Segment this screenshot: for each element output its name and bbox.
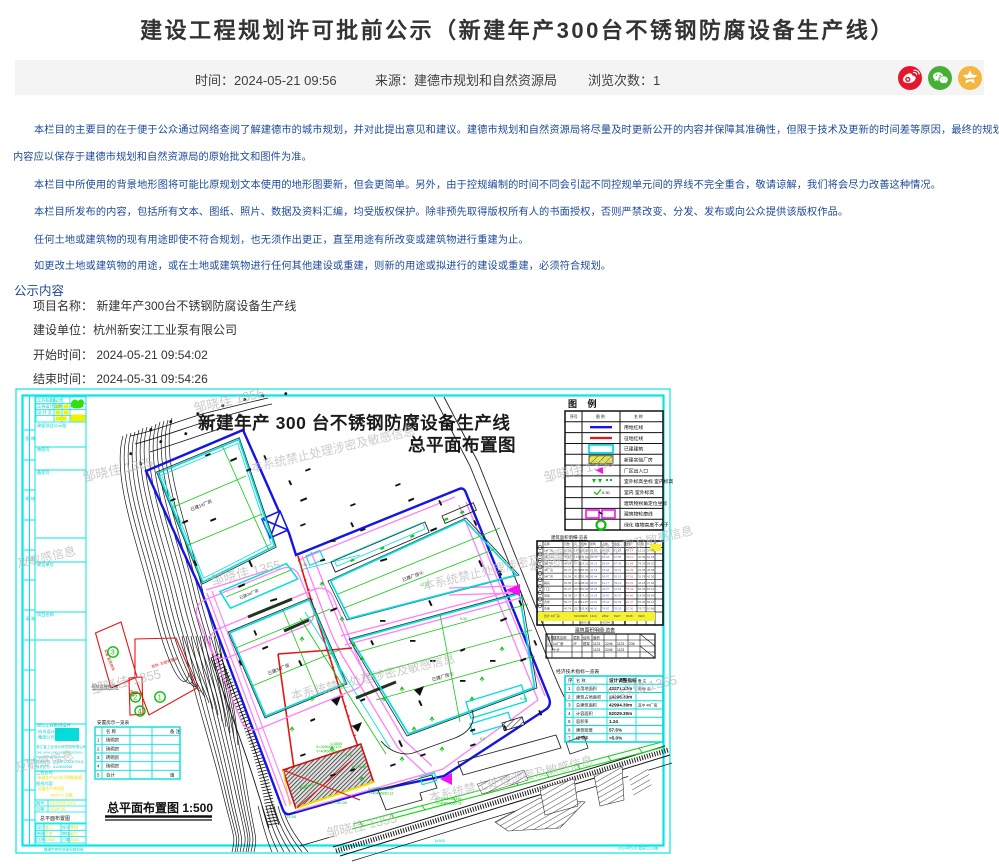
svg-text:56.83: 56.83 bbox=[581, 568, 589, 572]
svg-text:绿化 植物高度不大于: 绿化 植物高度不大于 bbox=[624, 521, 669, 528]
svg-text:26-2024-1101: 26-2024-1101 bbox=[50, 801, 76, 806]
svg-text:总平面布置图: 总平面布置图 bbox=[40, 815, 70, 822]
svg-text:其中 4#厂房: 其中 4#厂房 bbox=[638, 703, 658, 708]
svg-text:78.43: 78.43 bbox=[626, 587, 634, 591]
svg-text:58.22: 58.22 bbox=[590, 561, 598, 565]
svg-text:录: 录 bbox=[26, 615, 30, 621]
svg-text:厂区出入口: 厂区出入口 bbox=[624, 467, 648, 474]
svg-text:建筑物拐角定位坐标: 建筑物拐角定位坐标 bbox=[624, 500, 667, 507]
svg-text:18.59: 18.59 bbox=[638, 594, 646, 598]
svg-text:江苏柏勤设计: 江苏柏勤设计 bbox=[37, 397, 62, 404]
svg-text:91.56: 91.56 bbox=[564, 574, 572, 578]
svg-text:邹晓佳 1355: 邹晓佳 1355 bbox=[89, 666, 162, 697]
svg-text:名 称: 名 称 bbox=[634, 414, 643, 419]
svg-text:1: 1 bbox=[97, 738, 100, 743]
svg-text:6310: 6310 bbox=[574, 614, 581, 618]
svg-text:45.68: 45.68 bbox=[647, 568, 655, 572]
svg-text:层数: 层数 bbox=[573, 635, 580, 640]
svg-text:8.8: 8.8 bbox=[480, 737, 485, 741]
svg-text:9804.30: 9804.30 bbox=[580, 620, 591, 624]
svg-text:1x300: 1x300 bbox=[434, 838, 446, 843]
svg-text:结构: 结构 bbox=[583, 635, 590, 640]
svg-text:新建年产 300 台不锈钢防腐设备生产线: 新建年产 300 台不锈钢防腐设备生产线 bbox=[198, 413, 510, 433]
svg-text:58.86: 58.86 bbox=[647, 594, 655, 598]
svg-text:95.44: 95.44 bbox=[590, 574, 598, 578]
svg-text:用地红线: 用地红线 bbox=[624, 424, 643, 431]
svg-text:已建1#厂房: 已建1#厂房 bbox=[189, 498, 213, 513]
svg-text:日期: 日期 bbox=[62, 836, 70, 842]
svg-text:工程名称: 工程名称 bbox=[36, 769, 53, 776]
svg-text:2024.05: 2024.05 bbox=[50, 807, 66, 812]
svg-text:51.17: 51.17 bbox=[602, 581, 610, 585]
svg-text:4: 4 bbox=[97, 764, 100, 769]
svg-text:设备生产线项目: 设备生产线项目 bbox=[38, 786, 65, 791]
svg-text:50.61: 50.61 bbox=[626, 581, 634, 585]
svg-text:建筑面积明细-览表: 建筑面积明细-览表 bbox=[575, 627, 615, 634]
svg-text:名 称: 名 称 bbox=[576, 677, 586, 684]
svg-text:食堂: 食堂 bbox=[544, 599, 550, 604]
svg-text:建德市自然资源和规划局: 建德市自然资源和规划局 bbox=[44, 847, 84, 852]
svg-text:新建年产300台不锈钢防腐: 新建年产300台不锈钢防腐 bbox=[38, 775, 83, 780]
svg-text:15.68: 15.68 bbox=[626, 561, 634, 565]
svg-text:9005: 9005 bbox=[581, 614, 588, 618]
svg-text:1: 1 bbox=[547, 642, 549, 646]
svg-text:X=3265460.789: X=3265460.789 bbox=[368, 787, 393, 791]
svg-text:26007-1 总图: 26007-1 总图 bbox=[50, 793, 73, 798]
svg-text:30.99: 30.99 bbox=[638, 555, 646, 559]
svg-text:征地红线: 征地红线 bbox=[624, 435, 643, 442]
svg-text:4: 4 bbox=[138, 709, 142, 716]
svg-text:集团公司: 集团公司 bbox=[38, 734, 55, 741]
svg-text:29.90: 29.90 bbox=[602, 594, 610, 598]
svg-text:2: 2 bbox=[133, 695, 137, 702]
svg-text:备 注: 备 注 bbox=[170, 728, 181, 735]
svg-text:容积率: 容积率 bbox=[576, 718, 589, 725]
svg-text:1123: 1123 bbox=[593, 642, 600, 646]
svg-text:辅房: 辅房 bbox=[544, 580, 550, 585]
svg-text:设 计 文: 设 计 文 bbox=[37, 409, 53, 416]
svg-text:1=3000: 1=3000 bbox=[330, 742, 342, 746]
svg-text:57.30: 57.30 bbox=[626, 607, 634, 611]
svg-text:建筑密度: 建筑密度 bbox=[576, 726, 594, 733]
svg-text:7: 7 bbox=[568, 736, 571, 741]
svg-text:55.36: 55.36 bbox=[581, 574, 589, 578]
svg-text:1: 1 bbox=[158, 695, 162, 702]
svg-text:总建筑面积: 总建筑面积 bbox=[576, 702, 597, 709]
svg-text:建德项目公示图: 建德项目公示图 bbox=[37, 422, 66, 429]
svg-text:23.90: 23.90 bbox=[581, 607, 589, 611]
svg-text:赵六: 赵六 bbox=[70, 830, 78, 836]
svg-text:9.30: 9.30 bbox=[300, 563, 307, 567]
svg-text:5: 5 bbox=[97, 772, 100, 777]
svg-text:34.18: 34.18 bbox=[590, 568, 598, 572]
svg-text:2246: 2246 bbox=[605, 642, 613, 646]
svg-text:68.10: 68.10 bbox=[647, 600, 655, 604]
svg-text:98.81: 98.81 bbox=[581, 581, 589, 585]
svg-text:名称: 名称 bbox=[544, 541, 550, 546]
svg-text:建筑面积明细-览表: 建筑面积明细-览表 bbox=[551, 534, 588, 541]
svg-text:2F: 2F bbox=[573, 642, 577, 646]
svg-text:2832: 2832 bbox=[602, 614, 609, 618]
svg-text:73.21: 73.21 bbox=[581, 594, 589, 598]
svg-text:55.54: 55.54 bbox=[602, 561, 610, 565]
svg-text:78.25: 78.25 bbox=[638, 561, 646, 565]
svg-text:87.91: 87.91 bbox=[626, 574, 634, 578]
svg-text:64.86: 64.86 bbox=[626, 594, 634, 598]
svg-text:74.87: 74.87 bbox=[602, 607, 610, 611]
svg-text:李四: 李四 bbox=[70, 824, 78, 830]
svg-text:52029.30m: 52029.30m bbox=[609, 711, 632, 716]
svg-text:框架: 框架 bbox=[583, 641, 590, 646]
svg-text:2: 2 bbox=[97, 746, 100, 751]
svg-text:名 称: 名 称 bbox=[106, 728, 117, 735]
svg-text:准: 准 bbox=[31, 615, 35, 622]
svg-text:60.92: 60.92 bbox=[581, 587, 589, 591]
svg-text:砖砌房: 砖砌房 bbox=[106, 754, 120, 761]
svg-text:备案号: 备案号 bbox=[37, 469, 50, 476]
svg-text:11.97: 11.97 bbox=[581, 600, 588, 604]
svg-text:合计: 合计 bbox=[106, 771, 115, 778]
svg-text:87.43: 87.43 bbox=[614, 561, 622, 565]
svg-text:92.19: 92.19 bbox=[614, 574, 622, 578]
svg-text:5#厂房: 5#厂房 bbox=[544, 573, 553, 578]
svg-text:2024: 2024 bbox=[70, 837, 80, 842]
svg-text:比例: 比例 bbox=[37, 836, 45, 842]
svg-text:图 例: 图 例 bbox=[568, 398, 601, 409]
svg-text:56.38: 56.38 bbox=[564, 594, 572, 598]
svg-text:Y=40456820.12: Y=40456820.12 bbox=[368, 792, 393, 796]
svg-text:Y=40456789.45: Y=40456789.45 bbox=[316, 750, 341, 754]
svg-text:总平面布置图: 总平面布置图 bbox=[408, 435, 516, 455]
svg-text:审图号: 审图号 bbox=[37, 446, 50, 453]
svg-text:23.95: 23.95 bbox=[286, 814, 297, 819]
svg-text:9.30: 9.30 bbox=[520, 697, 527, 701]
svg-text:37.82: 37.82 bbox=[647, 581, 655, 585]
svg-text:39.14: 39.14 bbox=[614, 581, 622, 585]
svg-text:建筑占地面积: 建筑占地面积 bbox=[576, 693, 601, 700]
svg-text:图纸内容: 图纸内容 bbox=[36, 780, 53, 787]
svg-text:37.39: 37.39 bbox=[647, 549, 655, 553]
svg-text:30.97: 30.97 bbox=[614, 594, 622, 598]
svg-text:门卫: 门卫 bbox=[544, 586, 550, 591]
svg-text:9.30: 9.30 bbox=[602, 490, 611, 495]
svg-text:3: 3 bbox=[568, 703, 571, 708]
svg-text:项目名称: 项目名称 bbox=[37, 611, 54, 618]
svg-text:68.28: 68.28 bbox=[590, 587, 598, 591]
svg-text:79.77: 79.77 bbox=[638, 607, 646, 611]
svg-text:38.97: 38.97 bbox=[590, 581, 598, 585]
svg-text:24.97: 24.97 bbox=[590, 600, 598, 604]
svg-text:张三: 张三 bbox=[45, 824, 53, 830]
svg-text:合计 4#厂房: 合计 4#厂房 bbox=[544, 613, 560, 618]
svg-text:建筑名称: 建筑名称 bbox=[553, 635, 567, 640]
svg-text:2: 2 bbox=[568, 694, 571, 699]
svg-text:砖砌房: 砖砌房 bbox=[106, 745, 120, 752]
svg-text:砖砌房: 砖砌房 bbox=[106, 763, 120, 770]
svg-text:92.53: 92.53 bbox=[614, 600, 622, 604]
svg-text:64.53: 64.53 bbox=[647, 555, 655, 559]
svg-text:5: 5 bbox=[568, 719, 571, 724]
svg-text:已建2#厂房: 已建2#厂房 bbox=[238, 587, 259, 600]
svg-text:99.97: 99.97 bbox=[602, 574, 610, 578]
svg-text:45.10: 45.10 bbox=[626, 555, 634, 559]
svg-text:1#厂房: 1#厂房 bbox=[553, 641, 564, 646]
svg-text:审: 审 bbox=[31, 435, 35, 442]
svg-text:6038: 6038 bbox=[626, 614, 633, 618]
svg-text:1123: 1123 bbox=[593, 648, 600, 652]
svg-text:邹晓佳 1355: 邹晓佳 1355 bbox=[542, 454, 615, 485]
svg-text:1:500: 1:500 bbox=[45, 837, 56, 842]
svg-text:4: 4 bbox=[568, 711, 571, 716]
svg-text:6: 6 bbox=[568, 727, 571, 732]
svg-text:57.5%: 57.5% bbox=[609, 727, 622, 732]
svg-text:10.86: 10.86 bbox=[647, 607, 655, 611]
svg-text:浙江工程勘测设计: 浙江工程勘测设计 bbox=[37, 722, 71, 729]
svg-text:面积: 面积 bbox=[593, 635, 600, 640]
svg-text:图 例: 图 例 bbox=[596, 414, 605, 419]
svg-text:41.30: 41.30 bbox=[647, 574, 655, 578]
svg-text:邹晓佳 1355: 邹晓佳 1355 bbox=[192, 385, 265, 416]
svg-text:69.58: 69.58 bbox=[564, 581, 572, 585]
svg-text:84.64: 84.64 bbox=[638, 587, 646, 591]
svg-text:67.85: 67.85 bbox=[614, 555, 622, 559]
svg-text:浙江省工业设计研究院有限公司: 浙江省工业设计研究院有限公司 bbox=[36, 744, 87, 749]
svg-text:邹晓佳 1355: 邹晓佳 1355 bbox=[325, 810, 398, 841]
svg-text:4923: 4923 bbox=[638, 614, 645, 618]
svg-text:35.29: 35.29 bbox=[614, 607, 622, 611]
svg-text:43.27: 43.27 bbox=[602, 587, 610, 591]
svg-text:1F=30.00: 1F=30.00 bbox=[330, 800, 348, 805]
svg-text:总用地面积: 总用地面积 bbox=[576, 685, 597, 692]
svg-text:绿地率: 绿地率 bbox=[576, 735, 589, 742]
svg-text:58.20: 58.20 bbox=[647, 561, 655, 565]
svg-text:6947: 6947 bbox=[614, 614, 621, 618]
svg-text:经济技术指标一览表: 经济技术指标一览表 bbox=[556, 668, 599, 675]
svg-text:>5.0%: >5.0% bbox=[609, 736, 622, 741]
svg-text:宿舍: 宿舍 bbox=[544, 593, 550, 598]
svg-text:审核: 审核 bbox=[62, 830, 70, 836]
svg-text:42994.30m: 42994.30m bbox=[609, 703, 632, 708]
svg-text:31.78: 31.78 bbox=[638, 574, 646, 578]
svg-text:邹晓佳 1355: 邹晓佳 1355 bbox=[81, 454, 154, 485]
svg-text:工程设计文件: 工程设计文件 bbox=[37, 403, 62, 410]
svg-text:42994.30: 42994.30 bbox=[602, 620, 614, 624]
svg-text:安置房示一览表: 安置房示一览表 bbox=[97, 719, 130, 726]
svg-text:1123: 1123 bbox=[617, 648, 624, 652]
svg-text:20.39: 20.39 bbox=[626, 568, 634, 572]
svg-text:建筑物轮廓线: 建筑物轮廓线 bbox=[624, 511, 653, 518]
svg-text:65.30: 65.30 bbox=[638, 600, 646, 604]
svg-text:1: 1 bbox=[568, 686, 571, 691]
svg-text:王五: 王五 bbox=[45, 831, 53, 836]
svg-text:室外标高坐标 室内标高: 室外标高坐标 室内标高 bbox=[624, 478, 674, 485]
svg-text:16.24: 16.24 bbox=[590, 594, 598, 598]
svg-text:制图: 制图 bbox=[37, 830, 45, 836]
svg-text:3: 3 bbox=[111, 650, 115, 657]
svg-text:已建建筑: 已建建筑 bbox=[624, 446, 643, 453]
svg-text:43.74: 43.74 bbox=[564, 607, 572, 611]
svg-text:序号: 序号 bbox=[570, 414, 578, 419]
svg-text:新建实验厂房: 新建实验厂房 bbox=[624, 457, 653, 464]
svg-text:1319: 1319 bbox=[590, 614, 597, 618]
svg-text:236: 236 bbox=[629, 642, 635, 646]
svg-text:仓库: 仓库 bbox=[544, 606, 550, 611]
svg-text:亩: 亩 bbox=[170, 771, 175, 778]
svg-text:84.61: 84.61 bbox=[647, 587, 655, 591]
svg-text:序: 序 bbox=[568, 677, 573, 684]
svg-text:24.47: 24.47 bbox=[626, 600, 634, 604]
svg-text:44.18: 44.18 bbox=[638, 581, 646, 585]
svg-text:39.47: 39.47 bbox=[614, 568, 622, 572]
svg-text:室内 室外标高: 室内 室外标高 bbox=[624, 489, 654, 496]
svg-text:69.77: 69.77 bbox=[564, 600, 572, 604]
svg-text:78.44: 78.44 bbox=[602, 600, 610, 604]
svg-text:计容面积: 计容面积 bbox=[576, 710, 593, 717]
svg-text:9.30: 9.30 bbox=[345, 753, 352, 757]
svg-text:9.30: 9.30 bbox=[460, 617, 467, 621]
svg-text:80.47: 80.47 bbox=[564, 568, 572, 572]
svg-text:校对: 校对 bbox=[62, 824, 70, 830]
svg-text:1.24: 1.24 bbox=[609, 719, 618, 724]
svg-text:22.58: 22.58 bbox=[638, 568, 646, 572]
svg-text:2246: 2246 bbox=[605, 648, 613, 652]
svg-text:2024年5月 批前公示图: 2024年5月 批前公示图 bbox=[618, 845, 658, 851]
svg-text:50.37: 50.37 bbox=[564, 587, 572, 591]
svg-text:小计: 小计 bbox=[553, 647, 560, 652]
svg-text:1123: 1123 bbox=[617, 642, 624, 646]
svg-text:48.91: 48.91 bbox=[590, 607, 598, 611]
svg-text:15.94: 15.94 bbox=[602, 568, 610, 572]
svg-text:砖砌房: 砖砌房 bbox=[106, 737, 120, 744]
svg-text:设计: 设计 bbox=[37, 824, 45, 830]
svg-text:41.81: 41.81 bbox=[614, 587, 622, 591]
svg-text:3: 3 bbox=[97, 755, 100, 760]
svg-text:总平面布置图 1:500: 总平面布置图 1:500 bbox=[107, 800, 213, 815]
